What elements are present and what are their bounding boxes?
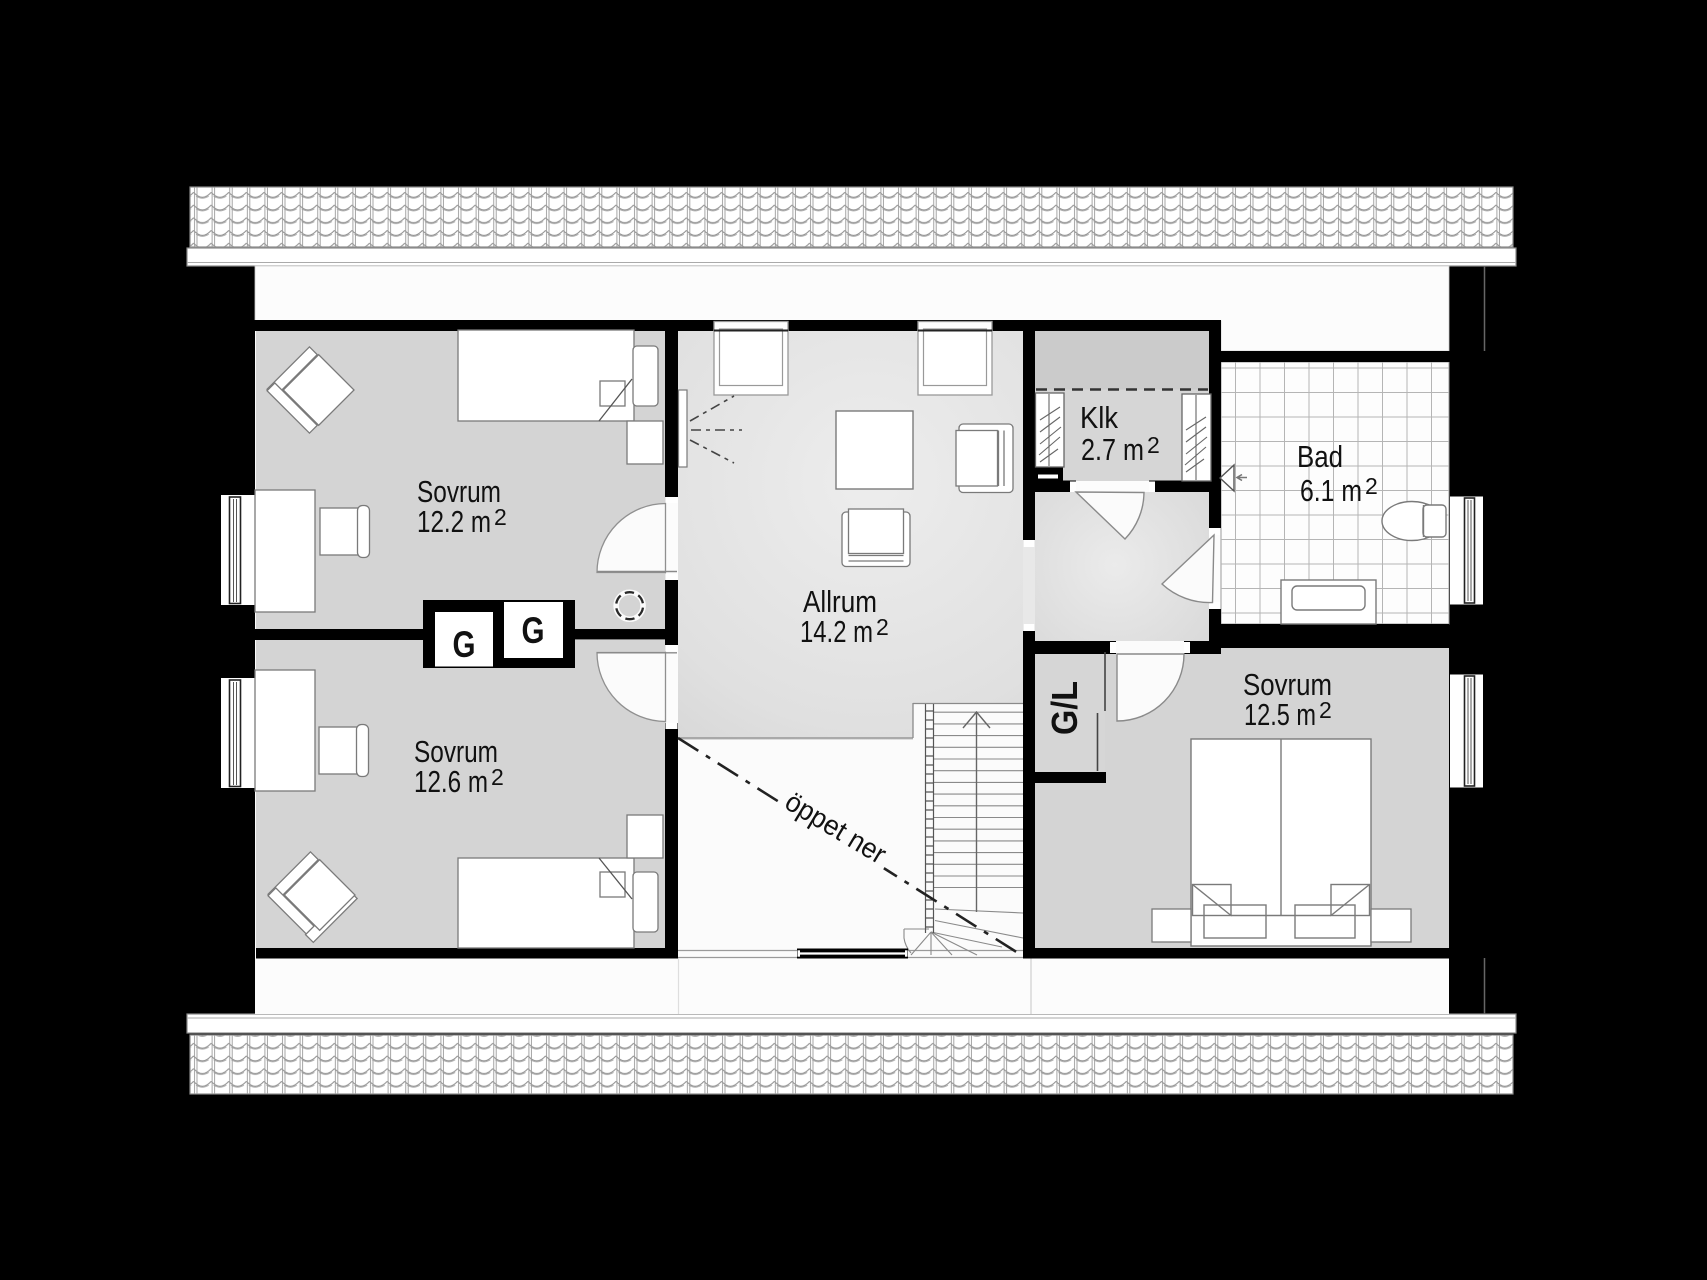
svg-text:12.5 m: 12.5 m [1244,697,1316,732]
svg-text:2: 2 [494,504,507,530]
svg-text:14.2 m: 14.2 m [800,614,873,649]
svg-text:Bad: Bad [1297,439,1343,474]
svg-text:G: G [453,624,476,665]
svg-text:12.2 m: 12.2 m [417,504,491,539]
svg-text:G: G [522,610,545,651]
svg-text:2: 2 [1319,697,1332,723]
svg-text:Klk: Klk [1080,400,1118,435]
svg-text:6.1 m: 6.1 m [1300,473,1362,508]
svg-text:G/L: G/L [1044,681,1085,735]
svg-text:2: 2 [876,614,889,640]
svg-text:2: 2 [1365,473,1378,499]
svg-text:12.6 m: 12.6 m [414,764,488,799]
svg-text:2.7 m: 2.7 m [1081,432,1144,467]
svg-text:2: 2 [1147,432,1160,458]
svg-text:2: 2 [491,764,504,790]
